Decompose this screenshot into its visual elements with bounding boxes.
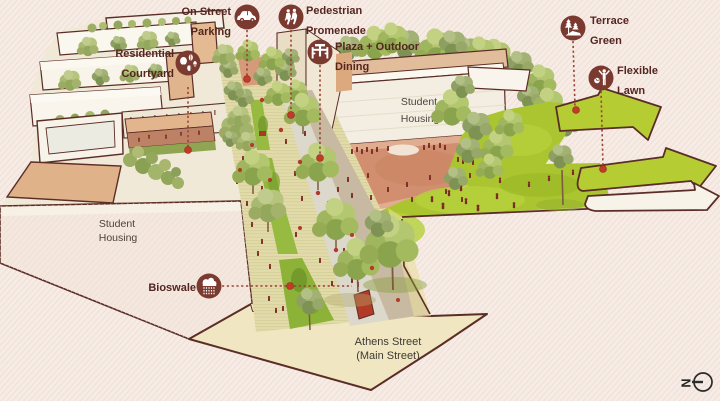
svg-text:Dining: Dining: [335, 61, 369, 73]
svg-text:Pedestrian: Pedestrian: [306, 5, 363, 17]
svg-text:Athens Street: Athens Street: [355, 336, 422, 348]
svg-text:N: N: [679, 378, 693, 387]
svg-text:Student: Student: [99, 218, 135, 230]
svg-text:Housing: Housing: [99, 232, 138, 244]
svg-text:Lawn: Lawn: [617, 85, 645, 97]
svg-text:Plaza + Outdoor: Plaza + Outdoor: [335, 41, 420, 53]
svg-text:Promenade: Promenade: [306, 25, 366, 37]
svg-text:(Main Street): (Main Street): [356, 350, 420, 362]
svg-text:Student: Student: [401, 96, 437, 108]
svg-text:Courtyard: Courtyard: [121, 68, 174, 80]
svg-text:Green: Green: [590, 35, 622, 47]
svg-text:Parking: Parking: [191, 26, 231, 38]
svg-text:Flexible: Flexible: [617, 65, 658, 77]
svg-text:On Street: On Street: [181, 6, 231, 18]
svg-text:Bioswale: Bioswale: [148, 282, 196, 294]
svg-text:Residential: Residential: [115, 48, 174, 60]
svg-text:Terrace: Terrace: [590, 15, 629, 27]
